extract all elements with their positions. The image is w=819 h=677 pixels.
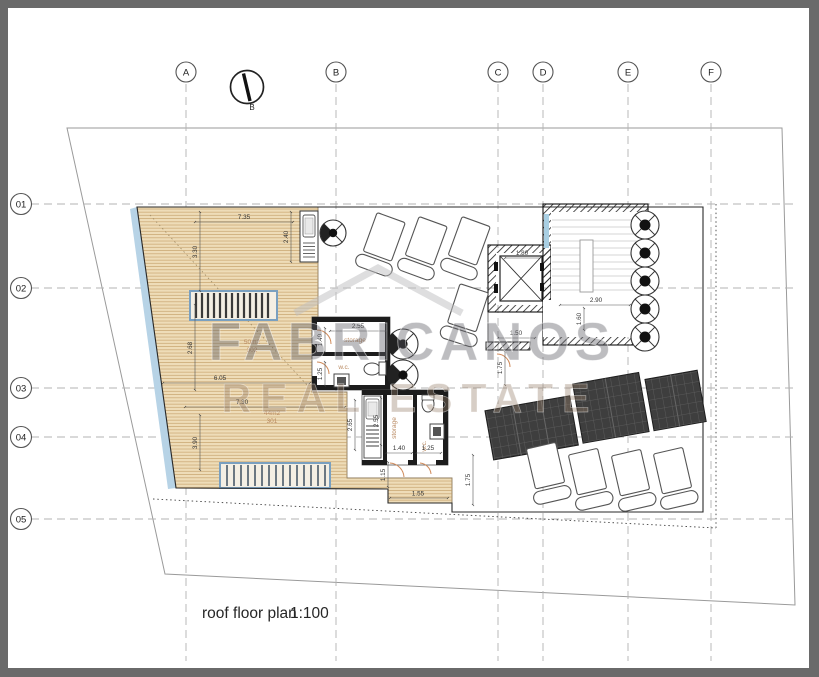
- planter-icon: [631, 323, 659, 351]
- dim-lower-wc-door: 1.25: [422, 445, 435, 452]
- title-block: roof floor plan 1:100: [202, 605, 329, 622]
- grid-bubble-03: 03: [11, 378, 32, 399]
- grid-label-01: 01: [16, 200, 27, 211]
- watermark-line1: FABRICANOS: [208, 312, 615, 372]
- grid-label-d: D: [540, 68, 547, 79]
- drawing-sheet: A B C D E F 01 02 03 04 05 B: [0, 0, 819, 677]
- grid-bubble-a: A: [176, 62, 196, 82]
- planter-icons: [631, 211, 659, 351]
- grid-bubble-f: F: [701, 62, 721, 82]
- dim-lower-storage-door: 1.40: [393, 445, 406, 452]
- grid-bubble-c: C: [488, 62, 508, 82]
- dim-deck-top-height: 3.30: [192, 245, 199, 258]
- dim-deck-mid-height: 2.68: [187, 341, 194, 354]
- dim-deck-top-width: 7.35: [238, 214, 251, 221]
- planter-icon: [631, 267, 659, 295]
- dim-step-width: 1.55: [412, 491, 425, 498]
- grid-label-c: C: [495, 68, 502, 79]
- grid-bubble-01: 01: [11, 194, 32, 215]
- dim-elevator-width: 1.80: [516, 250, 529, 257]
- planter-icon: [631, 239, 659, 267]
- dim-step-depth: 1.15: [380, 468, 387, 481]
- stair-window-band: [544, 214, 549, 248]
- drawing-scale: 1:100: [290, 605, 329, 622]
- north-arrow-label: B: [249, 103, 254, 112]
- dim-terrace-edge: 1.75: [465, 473, 472, 486]
- dim-deck-lower-height: 3.90: [192, 436, 199, 449]
- umbrella-icon: [320, 220, 346, 246]
- planter-icon: [631, 295, 659, 323]
- planter-icon: [631, 211, 659, 239]
- grid-label-02: 02: [16, 284, 27, 295]
- grid-label-04: 04: [16, 433, 27, 444]
- grid-label-a: A: [183, 68, 190, 79]
- grid-bubble-04: 04: [11, 427, 32, 448]
- grid-bubble-d: D: [533, 62, 553, 82]
- dim-stair-width: 2.90: [590, 297, 603, 304]
- grid-bubble-b: B: [326, 62, 346, 82]
- grid-bubble-e: E: [618, 62, 638, 82]
- grid-bubble-05: 05: [11, 509, 32, 530]
- grid-label-03: 03: [16, 384, 27, 395]
- grid-label-05: 05: [16, 515, 27, 526]
- drawing-title: roof floor plan: [202, 605, 297, 622]
- grid-bubble-02: 02: [11, 278, 32, 299]
- bar-counter: [300, 211, 318, 262]
- grid-label-f: F: [708, 68, 714, 79]
- grid-label-e: E: [625, 68, 631, 79]
- solar-panel-bank: [645, 370, 706, 430]
- pergola-lower: [220, 463, 330, 488]
- dim-bar-counter: 2.40: [283, 230, 290, 243]
- watermark-line2: REAL ESTATE: [222, 375, 599, 421]
- grid-label-b: B: [333, 68, 339, 79]
